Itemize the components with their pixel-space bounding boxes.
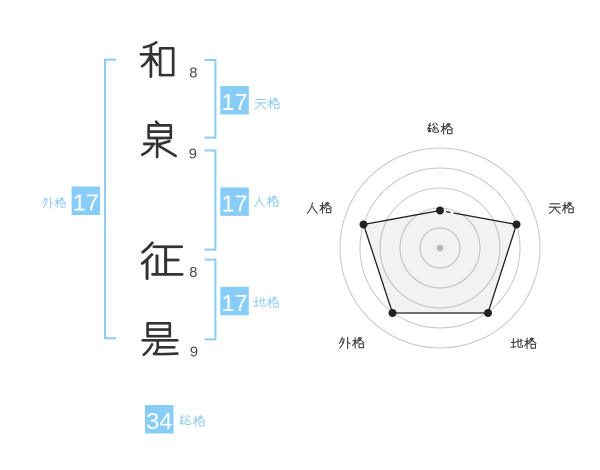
svg-text:9: 9 xyxy=(189,146,197,162)
svg-text:17: 17 xyxy=(221,190,247,216)
svg-text:17: 17 xyxy=(221,89,247,115)
svg-text:8: 8 xyxy=(189,265,197,281)
svg-text:8: 8 xyxy=(189,65,197,81)
svg-text:17: 17 xyxy=(221,290,247,316)
svg-text:17: 17 xyxy=(73,190,99,216)
svg-text:34: 34 xyxy=(146,408,172,434)
svg-text:9: 9 xyxy=(190,344,198,360)
